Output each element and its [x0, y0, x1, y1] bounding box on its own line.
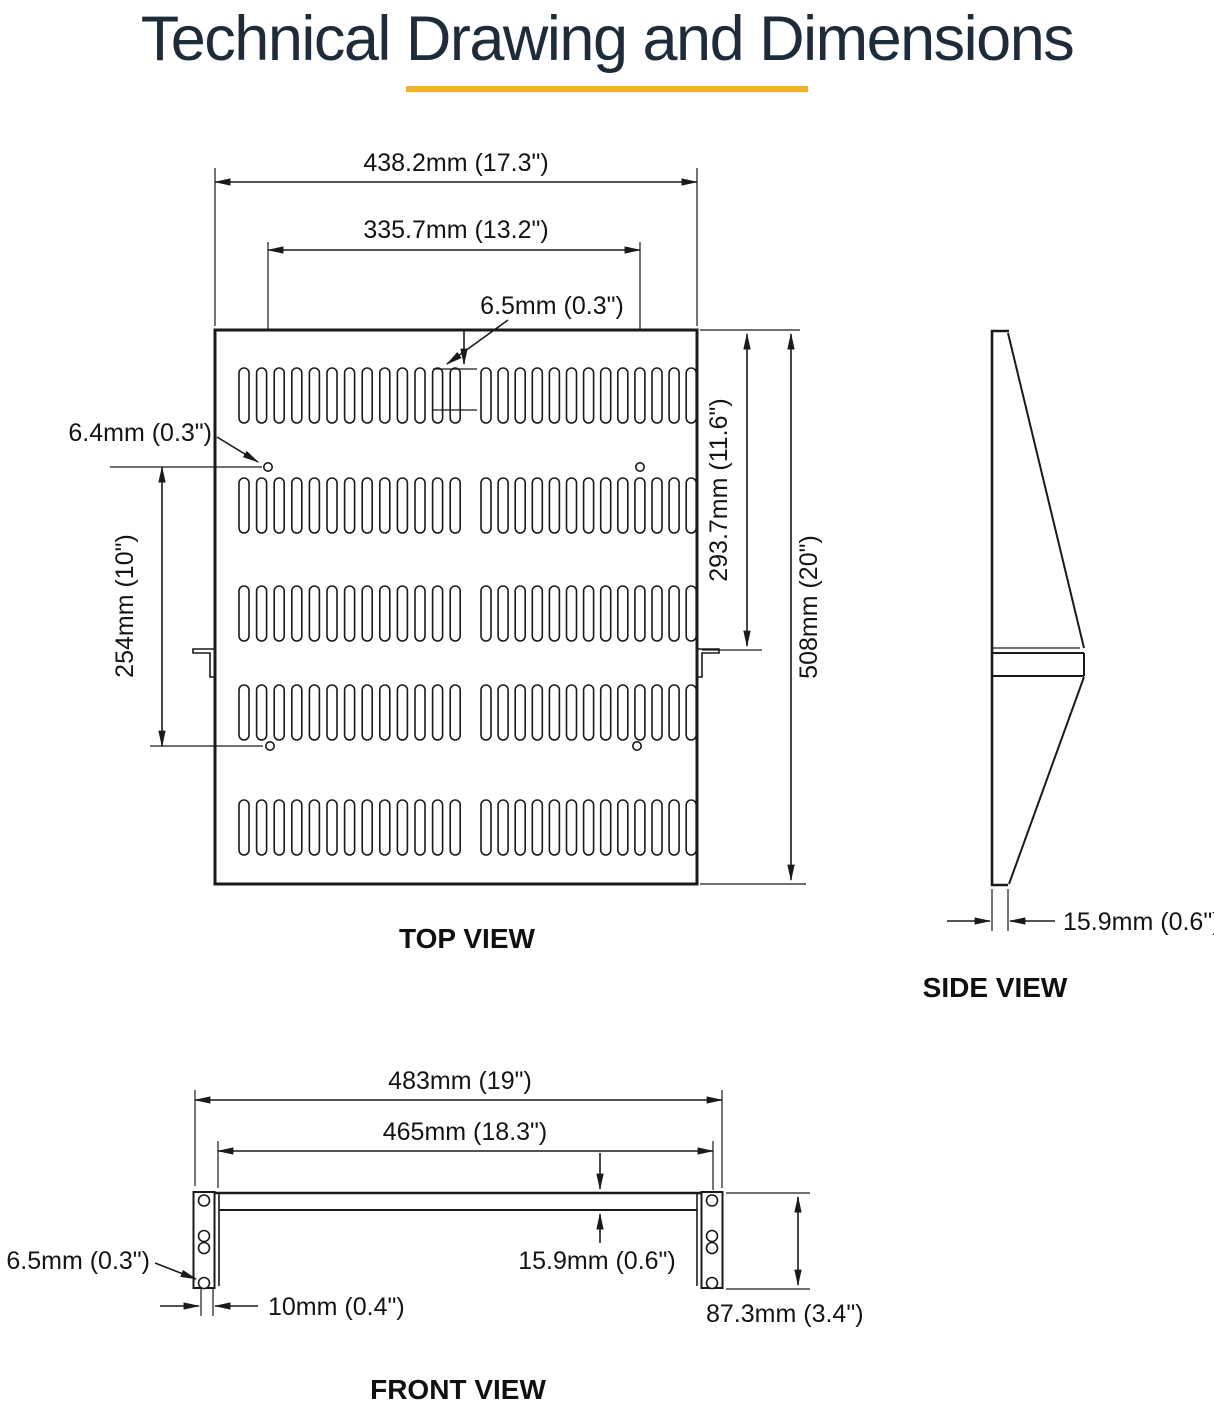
vent-slot	[450, 800, 460, 855]
vent-slot	[686, 800, 696, 855]
ear-hole	[707, 1195, 718, 1206]
vent-slot	[309, 800, 319, 855]
vent-slot	[652, 586, 662, 641]
vent-slot	[532, 368, 542, 423]
ear-hole	[199, 1243, 210, 1254]
vent-slot	[274, 478, 284, 533]
mount-hole	[636, 463, 644, 471]
vent-slot	[309, 685, 319, 740]
vent-slot	[380, 478, 390, 533]
vent-slot	[515, 368, 525, 423]
vent-slot	[532, 800, 542, 855]
vent-slot	[397, 368, 407, 423]
vent-slot	[532, 478, 542, 533]
vent-slot	[292, 800, 302, 855]
vent-slot	[549, 368, 559, 423]
vent-slot	[567, 586, 577, 641]
vent-slot	[362, 586, 372, 641]
side-profile-upper-taper	[1008, 333, 1084, 648]
dim-label-ear-hole-dia: 6.5mm (0.3")	[6, 1247, 150, 1275]
vent-slot	[257, 368, 267, 423]
dim-top-bracket-depth: 293.7mm (11.6")	[700, 330, 800, 650]
vent-slot	[397, 685, 407, 740]
vent-slot	[669, 800, 679, 855]
dim-label-rack-width: 483mm (19")	[388, 1067, 532, 1095]
vent-slot	[327, 685, 337, 740]
vent-slot	[481, 586, 491, 641]
vent-slot	[686, 368, 696, 423]
vent-slot	[601, 685, 611, 740]
vent-slot	[327, 800, 337, 855]
vent-slot	[652, 800, 662, 855]
dim-label-outer-width: 438.2mm (17.3")	[363, 149, 548, 177]
vent-slot	[498, 800, 508, 855]
vent-slot	[481, 478, 491, 533]
mount-bracket-right	[698, 649, 719, 677]
dim-label-shelf-thickness: 15.9mm (0.6")	[518, 1247, 676, 1275]
vent-slot	[415, 586, 425, 641]
vent-slot	[345, 586, 355, 641]
ear-hole	[707, 1278, 718, 1289]
front-view: 483mm (19") 465mm (18.3") 6.5mm (0.3") 1…	[6, 1067, 863, 1405]
vent-slot	[498, 586, 508, 641]
vent-slot	[618, 478, 628, 533]
vent-slot	[567, 368, 577, 423]
vent-slot	[362, 478, 372, 533]
vent-slot	[498, 478, 508, 533]
vent-slot	[498, 685, 508, 740]
vent-slot	[257, 800, 267, 855]
vent-slot	[239, 586, 249, 641]
vent-slot	[397, 478, 407, 533]
vent-slot	[652, 368, 662, 423]
vent-slot	[380, 368, 390, 423]
vent-slot	[635, 478, 645, 533]
side-view: 15.9mm (0.6") SIDE VIEW	[923, 330, 1214, 1003]
vent-slot	[481, 800, 491, 855]
ear-hole	[199, 1278, 210, 1289]
vent-slot	[481, 368, 491, 423]
vent-slot	[433, 685, 443, 740]
vent-slot	[652, 685, 662, 740]
dim-label-side-thickness: 15.9mm (0.6")	[1063, 908, 1214, 936]
ear-hole	[199, 1231, 210, 1242]
vent-slot	[635, 368, 645, 423]
vent-slot	[686, 586, 696, 641]
vent-slot	[481, 685, 491, 740]
vent-slot	[618, 368, 628, 423]
vent-slot	[415, 478, 425, 533]
dim-label-inner-width: 465mm (18.3")	[383, 1118, 548, 1146]
vent-slot	[669, 685, 679, 740]
vent-slot	[433, 478, 443, 533]
vent-slot	[362, 685, 372, 740]
vent-slot	[601, 586, 611, 641]
caption-top-view: TOP VIEW	[399, 923, 535, 954]
vent-slot	[292, 685, 302, 740]
vent-slot	[309, 586, 319, 641]
vent-slot	[309, 368, 319, 423]
dim-front-inner-width: 465mm (18.3")	[218, 1118, 713, 1151]
vent-slot	[239, 800, 249, 855]
vent-slot	[257, 478, 267, 533]
dim-label-hole-dia: 6.4mm (0.3")	[68, 419, 212, 447]
vent-slot	[239, 685, 249, 740]
vent-slot	[567, 478, 577, 533]
ear-hole	[707, 1243, 718, 1254]
vent-slot	[601, 478, 611, 533]
vent-slot	[380, 800, 390, 855]
vent-slot	[274, 800, 284, 855]
vent-slot	[327, 478, 337, 533]
vent-slot	[274, 586, 284, 641]
vent-slot	[618, 685, 628, 740]
vent-slot	[584, 685, 594, 740]
vent-slot	[635, 586, 645, 641]
vent-slot	[415, 800, 425, 855]
dim-label-hole-pitch: 254mm (10")	[111, 534, 139, 678]
dim-top-outer-width: 438.2mm (17.3")	[215, 149, 697, 182]
vent-slot	[549, 586, 559, 641]
vent-slot	[380, 685, 390, 740]
dim-label-ear-height: 87.3mm (3.4")	[706, 1300, 864, 1328]
caption-front-view: FRONT VIEW	[370, 1374, 546, 1405]
vent-slot	[669, 368, 679, 423]
top-view: 438.2mm (17.3") 335.7mm (13.2") 6.5mm (0…	[68, 149, 823, 954]
vent-slot	[549, 685, 559, 740]
vent-slot	[239, 368, 249, 423]
vent-slot	[274, 368, 284, 423]
mount-hole	[266, 742, 274, 750]
vent-slot	[327, 368, 337, 423]
vent-slot	[292, 478, 302, 533]
vent-slot	[327, 586, 337, 641]
vent-slot	[567, 685, 577, 740]
vent-slot	[309, 478, 319, 533]
vent-slot	[635, 685, 645, 740]
vent-slot	[362, 368, 372, 423]
vent-slot	[450, 478, 460, 533]
vent-slot	[515, 586, 525, 641]
vent-slot	[618, 586, 628, 641]
vent-slot	[415, 685, 425, 740]
vent-slot	[498, 368, 508, 423]
vent-slot	[433, 368, 443, 423]
vent-slot	[686, 685, 696, 740]
vent-slot	[584, 800, 594, 855]
vent-slot	[292, 586, 302, 641]
mount-hole	[633, 742, 641, 750]
vent-slot	[515, 685, 525, 740]
vent-slot	[450, 685, 460, 740]
dim-front-ear-hole-dia: 6.5mm (0.3")	[6, 1247, 196, 1279]
vent-slot	[415, 368, 425, 423]
vent-slot	[345, 685, 355, 740]
vent-slot	[380, 586, 390, 641]
dim-label-bracket-depth: 293.7mm (11.6")	[705, 398, 733, 581]
vent-slot	[239, 478, 249, 533]
ear-hole	[199, 1195, 210, 1206]
vent-slot	[450, 368, 460, 423]
vent-slot	[669, 586, 679, 641]
vent-slot	[433, 800, 443, 855]
mount-hole	[264, 463, 272, 471]
caption-side-view: SIDE VIEW	[923, 972, 1068, 1003]
vent-slot	[549, 478, 559, 533]
dim-label-flange-depth: 10mm (0.4")	[268, 1293, 405, 1321]
vent-slot	[345, 800, 355, 855]
vent-slot	[397, 800, 407, 855]
vent-slot	[433, 586, 443, 641]
dim-label-depth: 508mm (20")	[795, 535, 823, 679]
ear-hole	[707, 1231, 718, 1242]
vent-slot	[584, 586, 594, 641]
vent-slot	[450, 586, 460, 641]
vent-slot	[618, 800, 628, 855]
dim-front-rack-width: 483mm (19")	[195, 1067, 722, 1100]
dim-front-ear-height: 87.3mm (3.4")	[706, 1193, 864, 1328]
vent-slot	[257, 586, 267, 641]
vent-slot	[635, 800, 645, 855]
dim-label-hole-span: 335.7mm (13.2")	[363, 216, 548, 244]
vent-slot	[549, 800, 559, 855]
vent-slot	[669, 478, 679, 533]
vent-slot	[515, 800, 525, 855]
dim-front-shelf-thickness: 15.9mm (0.6")	[518, 1153, 676, 1275]
vent-slot	[345, 478, 355, 533]
vent-slot	[362, 800, 372, 855]
vent-slot	[274, 685, 284, 740]
vent-slot	[257, 685, 267, 740]
mount-bracket-left	[193, 649, 214, 677]
dim-label-slot-width: 6.5mm (0.3")	[480, 292, 624, 320]
technical-drawing-canvas: 438.2mm (17.3") 335.7mm (13.2") 6.5mm (0…	[0, 0, 1214, 1409]
vent-slot	[292, 368, 302, 423]
vent-slot	[345, 368, 355, 423]
vent-slot	[652, 478, 662, 533]
vent-slot	[515, 478, 525, 533]
vent-slot	[567, 800, 577, 855]
vent-slot	[601, 800, 611, 855]
vent-slot	[532, 685, 542, 740]
vent-slot	[397, 586, 407, 641]
vent-slot	[601, 368, 611, 423]
vent-slot	[584, 368, 594, 423]
vent-slot	[686, 478, 696, 533]
dim-front-flange-depth: 10mm (0.4")	[160, 1288, 405, 1321]
dim-side-thickness: 15.9mm (0.6")	[947, 889, 1214, 936]
vent-slot	[584, 478, 594, 533]
dim-top-hole-span: 335.7mm (13.2")	[268, 216, 640, 250]
side-profile-lower-taper	[1009, 677, 1084, 884]
vent-slot	[532, 586, 542, 641]
